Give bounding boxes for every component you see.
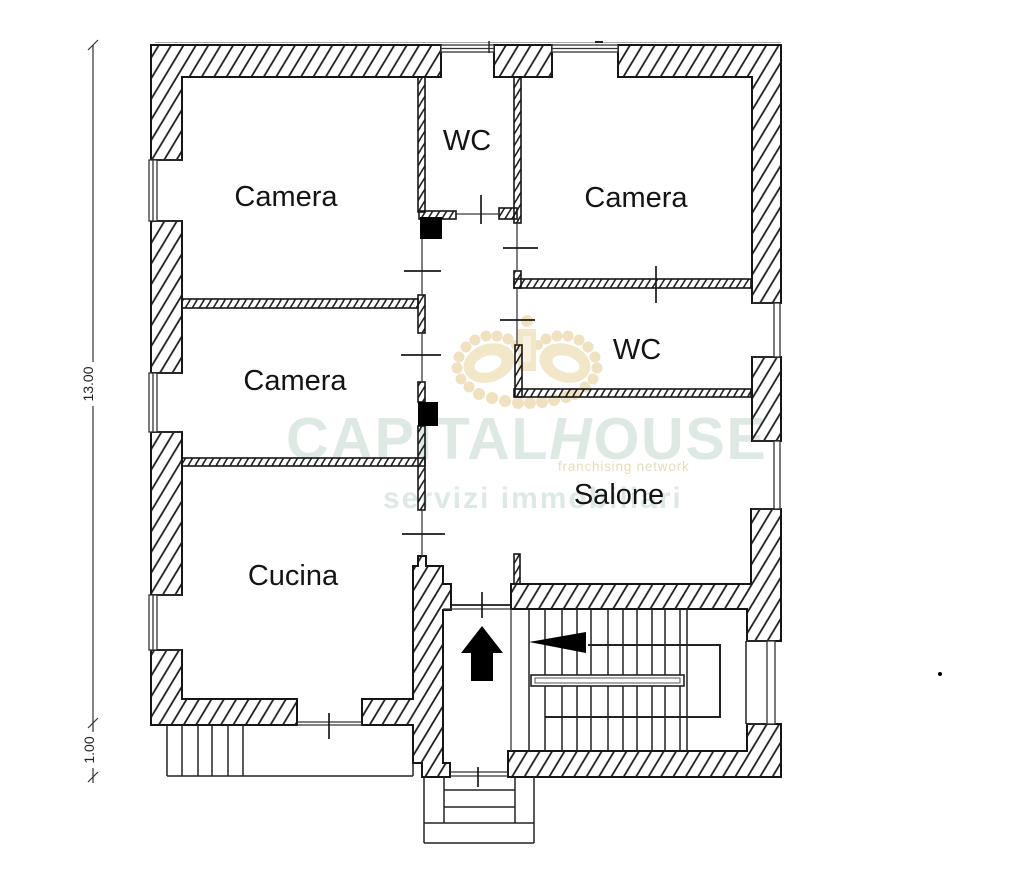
- svg-text:Camera: Camera: [243, 365, 347, 397]
- svg-text:Camera: Camera: [584, 182, 688, 214]
- svg-text:Cucina: Cucina: [248, 560, 339, 592]
- svg-text:Camera: Camera: [234, 181, 338, 213]
- svg-text:franchising network: franchising network: [558, 459, 690, 474]
- svg-text:13.00: 13.00: [80, 366, 96, 401]
- svg-text:WC: WC: [613, 334, 661, 366]
- svg-text:Salone: Salone: [574, 479, 664, 511]
- svg-text:WC: WC: [443, 125, 491, 157]
- svg-text:1.00: 1.00: [81, 736, 97, 763]
